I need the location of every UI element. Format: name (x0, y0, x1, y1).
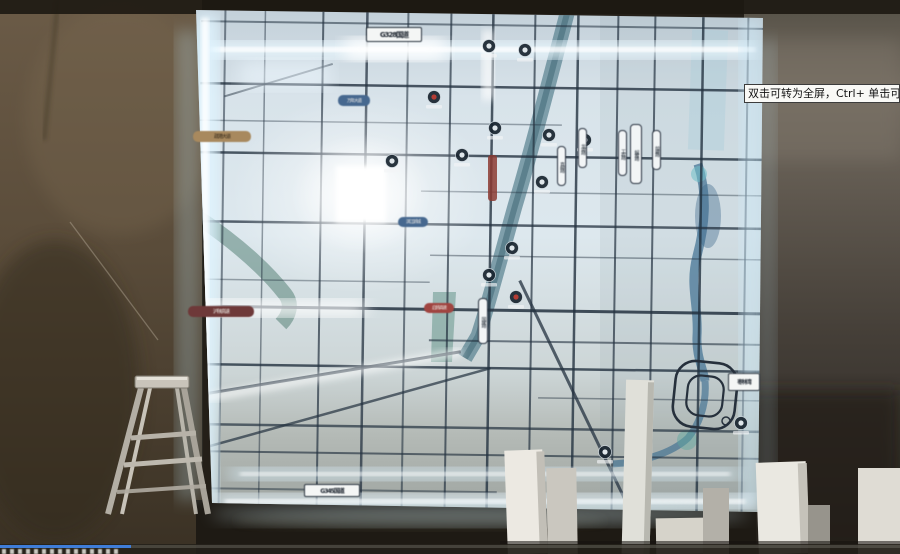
glow-spill-left (176, 30, 200, 500)
project-badge-icon (504, 242, 520, 260)
fullscreen-tooltip: 双击可转为全屏，Ctrl+ 单击可转为 (744, 84, 900, 103)
map-road-label-vertical: 龙河路 (578, 128, 587, 168)
map-road-label: G328国道 (366, 27, 422, 42)
project-badge-icon (426, 91, 442, 109)
project-badge-icon (541, 129, 557, 147)
landmark-tower-icon (488, 155, 497, 201)
map-area-label: 枣林湾 (728, 373, 760, 391)
project-badge-icon (487, 122, 503, 140)
project-badge-icon (733, 417, 749, 435)
project-badge-icon (517, 44, 533, 62)
video-frame[interactable]: G328国道 G345国道 疏港大道 沪陕高速 启扬高速 枣林湾 万年大道 滨江… (0, 0, 900, 554)
map-road-label: 万年大道 (338, 95, 370, 106)
map-panel (190, 5, 770, 517)
map-road-label-vertical: 前进路 (652, 130, 661, 170)
map-road-label: 沪陕高速 (188, 306, 254, 317)
map-road-label: 疏港大道 (193, 131, 251, 142)
map-area-label: 滨江新城 (398, 217, 428, 227)
project-badge-icon (454, 149, 470, 167)
player-progress-bar[interactable] (0, 544, 900, 554)
map-road-label: G345国道 (304, 484, 360, 497)
highlighted-plot (231, 94, 491, 294)
project-badge-icon (508, 291, 524, 309)
project-badge-icon (481, 40, 497, 58)
player-progress-fill (0, 545, 131, 548)
player-progress-track[interactable] (0, 545, 900, 548)
map-road-label: 启扬高速 (424, 303, 454, 313)
map-road-label-vertical: 国庆路 (478, 298, 488, 344)
glow-spill-right (758, 40, 776, 490)
project-badge-icon (384, 155, 400, 173)
project-badge-icon (597, 446, 613, 464)
map-road-label-vertical: 解放路 (630, 124, 642, 184)
project-badge-icon (534, 176, 550, 194)
map-road-label-vertical: 真州路 (557, 146, 566, 186)
ceiling-edge (0, 0, 900, 14)
map-road-label-vertical: 工农路 (618, 130, 627, 176)
player-controls-clipped (2, 549, 120, 554)
project-badge-icon (481, 269, 497, 287)
